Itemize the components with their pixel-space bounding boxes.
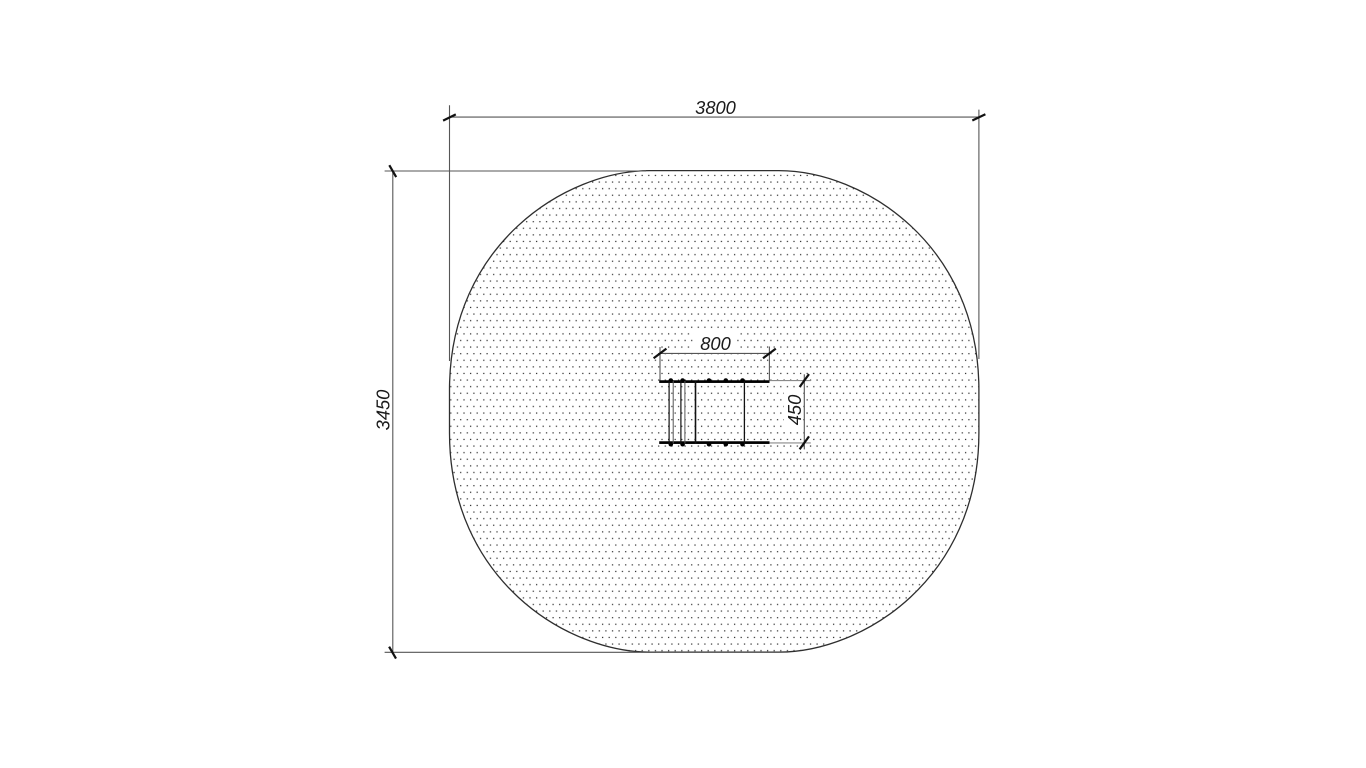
svg-text:3450: 3450: [372, 389, 393, 431]
svg-text:3800: 3800: [695, 97, 737, 118]
svg-text:800: 800: [700, 333, 731, 354]
svg-text:450: 450: [784, 394, 805, 425]
